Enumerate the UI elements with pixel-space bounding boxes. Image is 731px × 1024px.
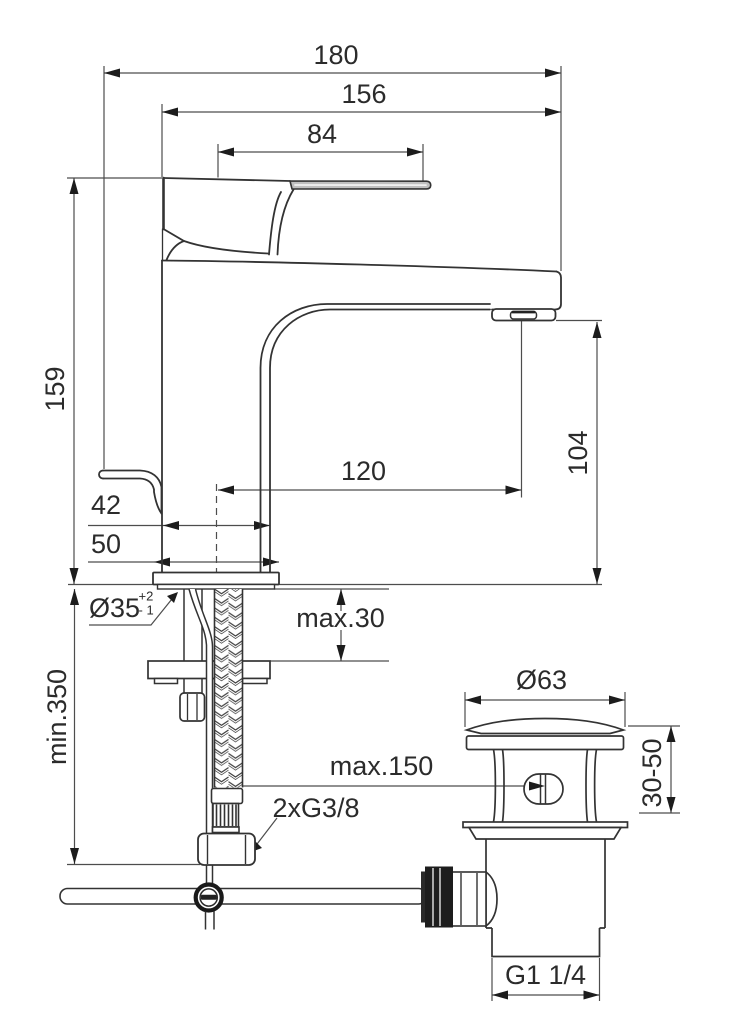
svg-text:180: 180	[313, 40, 358, 70]
svg-text:max.150: max.150	[330, 751, 434, 781]
svg-text:42: 42	[91, 490, 121, 520]
svg-text:50: 50	[91, 529, 121, 559]
svg-text:30-50: 30-50	[637, 738, 667, 807]
svg-text:Ø35: Ø35	[89, 593, 140, 623]
svg-text:104: 104	[563, 430, 593, 475]
svg-text:max.30: max.30	[296, 603, 385, 633]
svg-text:+2: +2	[139, 589, 154, 604]
svg-text:159: 159	[40, 366, 70, 411]
svg-text:Ø63: Ø63	[516, 665, 567, 695]
svg-text:84: 84	[307, 119, 337, 149]
svg-text:120: 120	[341, 456, 386, 486]
svg-text:min.350: min.350	[42, 669, 72, 765]
svg-text:2xG3/8: 2xG3/8	[272, 793, 359, 823]
svg-text:- 1: - 1	[139, 603, 154, 618]
svg-text:156: 156	[341, 79, 386, 109]
svg-text:G1 1/4: G1 1/4	[505, 960, 586, 990]
